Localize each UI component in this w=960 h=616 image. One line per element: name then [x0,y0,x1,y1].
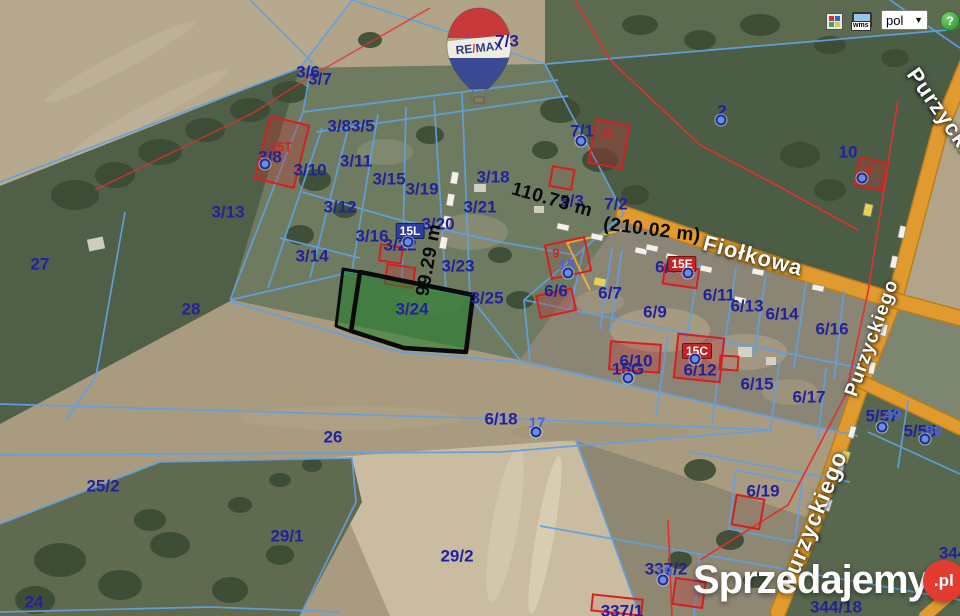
aerial-map-graphics: RE/MAX [0,0,960,616]
language-value: pol [886,13,903,28]
map-canvas[interactable]: RE/MAX [0,0,960,616]
help-button[interactable]: ? [940,11,960,31]
legend-layers-button[interactable] [826,13,843,30]
legend-grid-icon [835,16,840,21]
legend-grid-icon [835,22,840,27]
language-select[interactable]: pol ▼ [881,10,928,30]
wms-layer-button[interactable]: wms [851,12,871,31]
wms-label: wms [851,21,871,31]
legend-grid-icon [829,16,834,21]
chevron-down-icon: ▼ [914,15,923,25]
map-toolbar: wms pol ▼ ? [815,8,960,34]
legend-grid-icon [829,22,834,27]
map-application: RE/MAX 3/63/77/33/83/57/12103/83/103/113… [0,0,960,616]
